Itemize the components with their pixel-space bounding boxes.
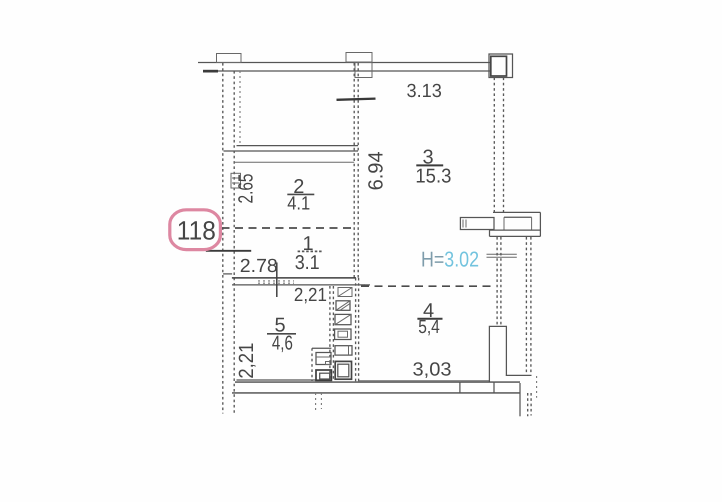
svg-text:118: 118 (177, 215, 216, 245)
svg-text:2,21: 2,21 (294, 285, 327, 306)
svg-text:4.1: 4.1 (287, 194, 310, 215)
svg-text:4,6: 4,6 (272, 333, 293, 355)
svg-text:2.78: 2.78 (240, 256, 278, 277)
svg-text:3.13: 3.13 (407, 81, 442, 102)
svg-text:5,4: 5,4 (418, 317, 440, 338)
svg-text:3,03: 3,03 (413, 360, 452, 381)
svg-text:3.1: 3.1 (295, 252, 320, 274)
svg-text:15.3: 15.3 (415, 165, 451, 187)
svg-text:2.65: 2.65 (235, 174, 258, 204)
svg-text:6.94: 6.94 (364, 151, 387, 190)
svg-text:H=3.02: H=3.02 (421, 247, 479, 271)
svg-text:2,21: 2,21 (235, 343, 258, 379)
